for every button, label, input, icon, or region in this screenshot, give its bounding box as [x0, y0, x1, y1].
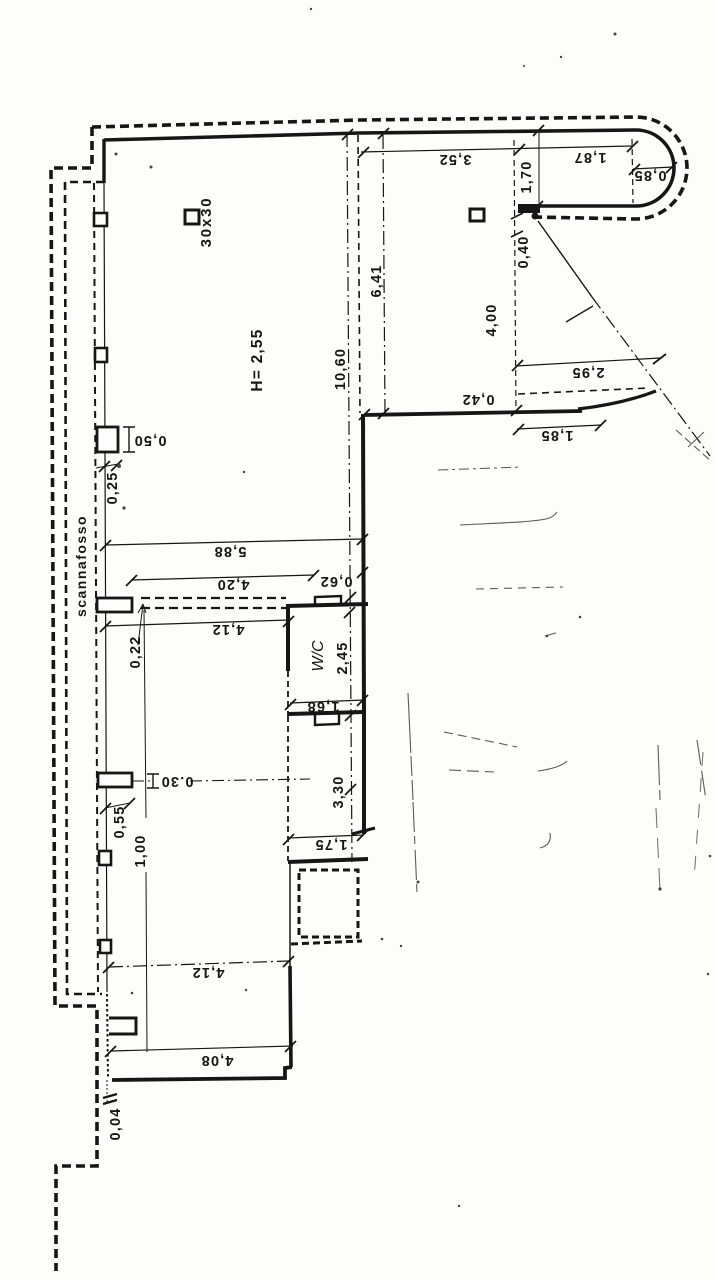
svg-text:5,88: 5,88 [213, 543, 246, 559]
svg-text:0,04: 0,04 [108, 1107, 124, 1140]
svg-text:W/C: W/C [310, 640, 327, 672]
svg-text:0.30: 0.30 [160, 773, 193, 789]
svg-text:6,41: 6,41 [369, 264, 385, 297]
svg-text:0,22: 0,22 [128, 635, 144, 668]
svg-text:30x30: 30x30 [198, 197, 215, 248]
svg-text:0,55: 0,55 [112, 805, 128, 838]
svg-text:0,40: 0,40 [516, 235, 532, 268]
svg-text:1,85: 1,85 [540, 427, 573, 443]
svg-text:0,50: 0,50 [133, 432, 166, 448]
svg-text:1,75: 1,75 [314, 836, 347, 852]
svg-text:4,12: 4,12 [211, 621, 244, 637]
svg-text:0,62: 0,62 [319, 573, 352, 589]
svg-text:2,95: 2,95 [571, 364, 604, 380]
svg-text:1,68: 1,68 [306, 698, 339, 714]
svg-text:0,42: 0,42 [461, 391, 494, 407]
svg-text:3,30: 3,30 [331, 775, 347, 808]
svg-text:2,45: 2,45 [335, 641, 351, 674]
svg-text:4,08: 4,08 [200, 1052, 233, 1068]
svg-text:0,85: 0,85 [633, 167, 666, 183]
svg-text:H= 2,55: H= 2,55 [249, 328, 266, 391]
svg-text:scannafosso: scannafosso [73, 515, 89, 617]
svg-text:1,00: 1,00 [133, 834, 149, 867]
svg-text:0,25: 0,25 [105, 471, 121, 504]
svg-text:3,52: 3,52 [438, 151, 471, 167]
svg-text:1,87: 1,87 [573, 149, 606, 165]
svg-text:4,00: 4,00 [484, 303, 500, 336]
svg-text:1,70: 1,70 [519, 160, 535, 193]
svg-text:10,60: 10,60 [333, 348, 349, 390]
svg-text:4,20: 4,20 [216, 576, 249, 592]
svg-text:4,12: 4,12 [191, 964, 224, 980]
